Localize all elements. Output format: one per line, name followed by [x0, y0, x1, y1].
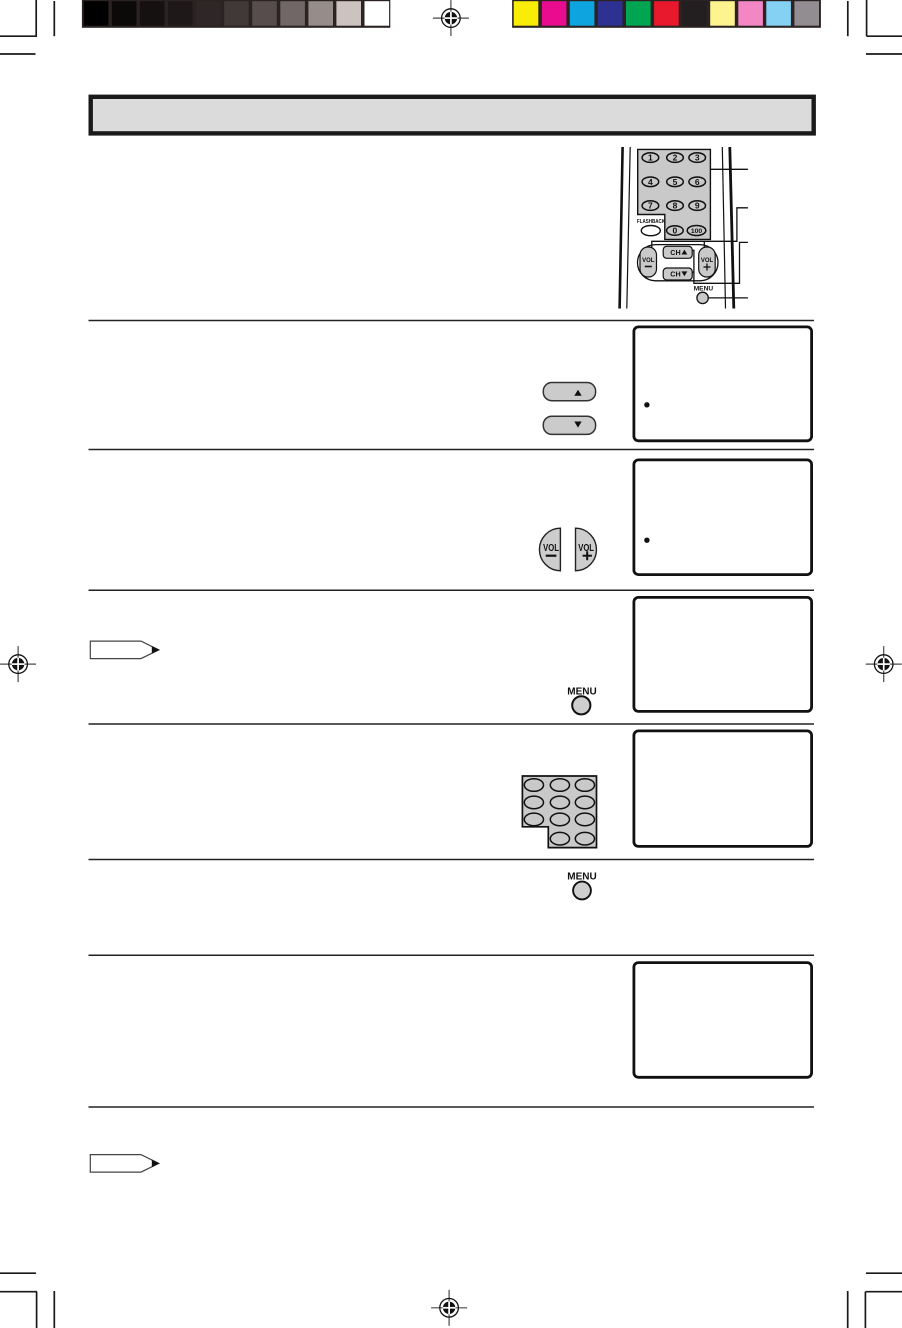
svg-text:3: 3: [695, 153, 700, 163]
svg-text:CH: CH: [670, 270, 680, 279]
svg-text:7: 7: [648, 201, 653, 211]
svg-text:8: 8: [673, 201, 678, 211]
svg-text:4: 4: [648, 177, 653, 187]
svg-text:5: 5: [673, 177, 678, 187]
svg-text:2: 2: [673, 153, 678, 163]
svg-text:9: 9: [695, 201, 700, 211]
svg-text:CH: CH: [670, 248, 680, 257]
svg-text:0: 0: [673, 226, 678, 236]
svg-text:VOL: VOL: [642, 258, 655, 264]
svg-text:6: 6: [695, 177, 700, 187]
svg-text:FLASHBACK: FLASHBACK: [637, 219, 665, 226]
svg-text:VOL: VOL: [543, 542, 559, 553]
svg-text:1: 1: [648, 153, 653, 163]
svg-text:MENU: MENU: [694, 285, 714, 292]
svg-text:VOL: VOL: [701, 258, 714, 264]
svg-text:100: 100: [691, 228, 703, 235]
